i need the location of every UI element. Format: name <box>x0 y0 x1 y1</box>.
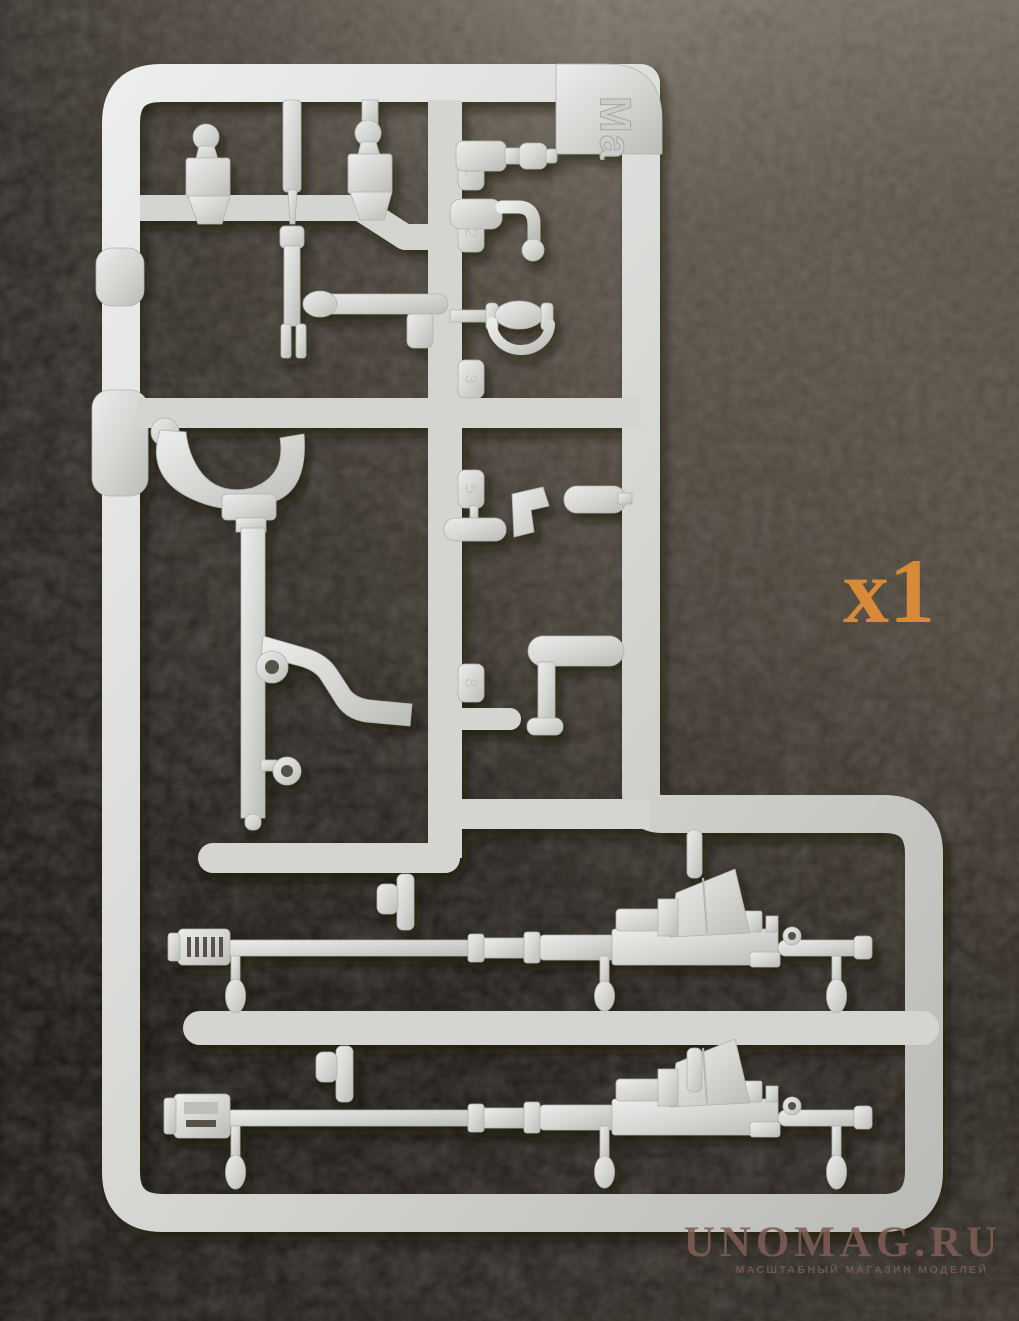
part-number-tag: 3 <box>462 374 481 383</box>
part-number-tag: 8 <box>462 678 481 687</box>
ejector-tab-upper <box>96 248 144 306</box>
gun-muzzle-box <box>174 1094 230 1138</box>
part-tapered-rod <box>303 291 448 317</box>
part-number-tag: 5 <box>462 484 481 493</box>
part-number-tag: 2 <box>462 228 481 237</box>
part-number-tag-blank <box>407 312 433 348</box>
part-number-tag-blank <box>377 884 398 914</box>
part-capsule <box>564 486 632 513</box>
watermark-subtitle: МАСШТАБНЫЙ МАГАЗИН МОДЕЛЕЙ <box>736 1263 989 1276</box>
photo-canvas: Ma 1 2 3 5 8 <box>0 0 1019 1321</box>
gate-letter-embossed: Ma <box>590 96 639 161</box>
watermark-title: UNOMAG.RU <box>684 1219 1003 1266</box>
sprue-photo: Ma 1 2 3 5 8 <box>0 0 1019 1321</box>
part-number-tag-blank <box>316 1052 337 1082</box>
quantity-annotation: x1 <box>843 540 935 642</box>
